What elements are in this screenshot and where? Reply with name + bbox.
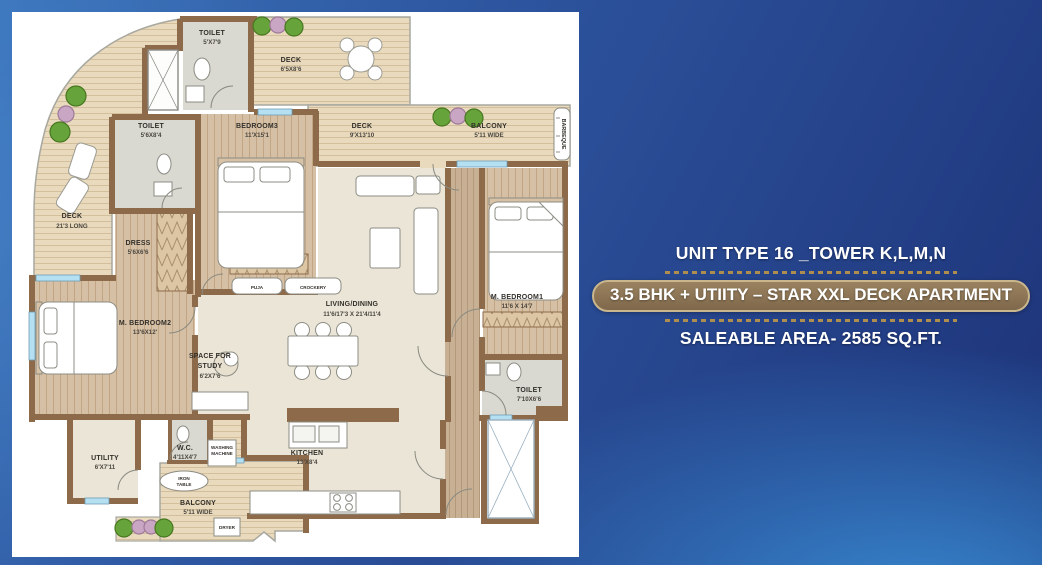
label-deck-top: DECK — [281, 57, 302, 64]
label-toilet-top: TOILET — [199, 30, 225, 37]
floorplan-panel: TOILET 5'X7'9 DECK 6'5X8'6 TOILET 5'6X8'… — [12, 12, 579, 557]
label-mbedroom2: M. BEDROOM2 — [119, 320, 171, 327]
label-toilet-left: TOILET — [138, 123, 164, 130]
dims-mbedroom1: 11'6 X 14'7 — [502, 303, 533, 310]
tree-icon — [66, 86, 86, 106]
label-crockery: CROCKERY — [300, 285, 326, 290]
iron-table — [160, 471, 208, 491]
label-washing-2: MACHINE — [211, 451, 232, 456]
dims-kitchen: 13'X8'4 — [297, 459, 318, 466]
elevator-shaft-top — [148, 50, 178, 110]
shrub-icon — [270, 17, 286, 33]
dims-dress: 5'6X6'6 — [128, 249, 149, 256]
label-kitchen: KITCHEN — [291, 450, 324, 457]
dotted-divider-top — [665, 271, 957, 274]
tree-icon — [155, 519, 173, 537]
saleable-area-text: SALEABLE AREA- 2585 SQ.FT. — [588, 328, 1034, 349]
label-deck-left: DECK — [62, 213, 83, 220]
unit-type-title: UNIT TYPE 16 _TOWER K,L,M,N — [588, 243, 1034, 264]
bed-bedroom3 — [218, 158, 304, 268]
dims-deck-mid: 9'X13'10 — [350, 132, 375, 139]
label-bedroom3: BEDROOM3 — [236, 123, 278, 130]
label-washing-1: WASHING — [211, 445, 233, 450]
label-wc: W.C. — [177, 445, 193, 452]
label-living: LIVING/DINING — [326, 301, 379, 308]
floorplan-drawing: TOILET 5'X7'9 DECK 6'5X8'6 TOILET 5'6X8'… — [12, 12, 579, 557]
dims-bedroom3: 11'X15'1 — [245, 132, 269, 139]
bed-mbedroom1 — [489, 198, 563, 300]
tree-icon — [253, 17, 271, 35]
dims-mbedroom2: 13'6X12' — [133, 329, 158, 336]
wall-jog — [536, 406, 568, 418]
label-deck-mid: DECK — [352, 123, 373, 130]
label-barbeque: BARBEQUE — [560, 119, 566, 150]
bed-mbedroom2 — [36, 302, 117, 374]
dims-wc: 4'11X4'7 — [173, 454, 197, 461]
dotted-divider-bottom — [665, 319, 957, 322]
unit-info-block: UNIT TYPE 16 _TOWER K,L,M,N 3.5 BHK + UT… — [588, 243, 1034, 349]
label-dress: DRESS — [125, 240, 150, 247]
label-study-1: SPACE FOR — [189, 353, 231, 360]
screenshot-stage: TOILET 5'X7'9 DECK 6'5X8'6 TOILET 5'6X8'… — [0, 0, 1042, 565]
label-study-2: STUDY — [198, 363, 223, 370]
tree-icon — [115, 519, 133, 537]
dims-toilet-left: 5'6X8'4 — [141, 132, 162, 139]
dining-set — [288, 323, 358, 380]
dims-living: 11'6/17'3 X 21'4/11'4 — [323, 311, 381, 318]
dims-toilet-m1: 7'10X6'6 — [517, 396, 542, 403]
dims-deck-left: 21'3 LONG — [56, 223, 88, 230]
dims-study: 6'2X7'6 — [200, 373, 221, 380]
tree-icon — [285, 18, 303, 36]
dims-utility: 6'X7'11 — [95, 464, 116, 471]
label-dryer: DRYER — [219, 525, 236, 530]
label-balcony-top: BALCONY — [471, 123, 507, 130]
elevator-shaft-bottom — [488, 420, 534, 518]
shrub-icon — [450, 108, 466, 124]
shrub-icon — [58, 106, 74, 122]
dims-balcony-top: 5'11 WIDE — [474, 132, 503, 139]
tree-icon — [50, 122, 70, 142]
dims-balcony-bot: 5'11 WIDE — [183, 509, 212, 516]
label-puja: PUJA — [251, 285, 264, 290]
dims-toilet-top: 5'X7'9 — [203, 39, 221, 46]
label-iron-1: IRON — [178, 476, 190, 481]
dims-deck-top: 6'5X8'6 — [281, 66, 302, 73]
label-toilet-m1: TOILET — [516, 387, 542, 394]
label-iron-2: TABLE — [177, 482, 192, 487]
label-utility: UTILITY — [91, 455, 119, 462]
label-balcony-bot: BALCONY — [180, 500, 216, 507]
label-mbedroom1: M. BEDROOM1 — [491, 294, 543, 301]
apartment-type-badge: 3.5 BHK + UTIITY – STAR XXL DECK APARTME… — [592, 280, 1030, 312]
tree-icon — [433, 108, 451, 126]
